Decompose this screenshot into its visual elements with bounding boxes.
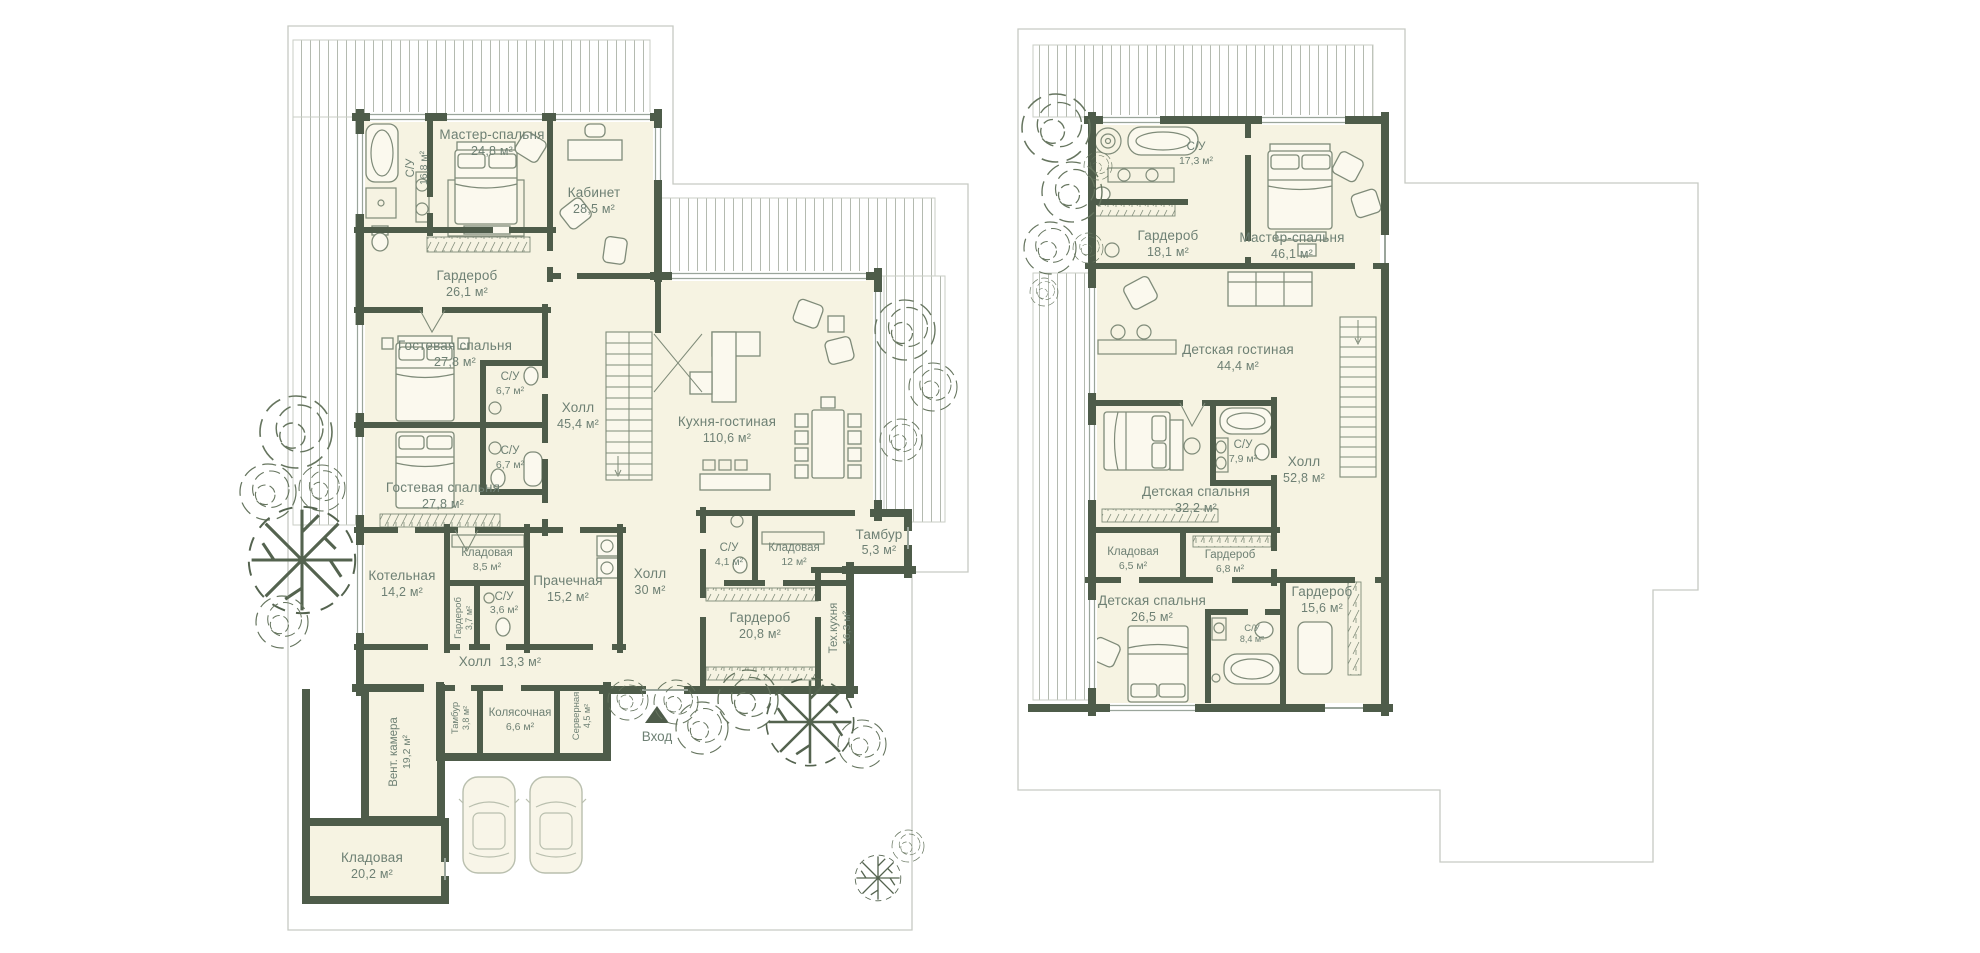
floorplan-svg: Вход С/У16,8 м² (0, 0, 1980, 953)
wardrobe-rail (706, 667, 818, 680)
wardrobe-rail (1095, 204, 1175, 216)
car-icon (526, 777, 586, 873)
terrace-deck (660, 198, 935, 276)
wardrobe-rail (1193, 536, 1271, 547)
wardrobe-rail (380, 514, 500, 527)
terrace-deck (884, 276, 945, 522)
entrance-label: Вход (642, 729, 673, 744)
room-label-tambur38: Тамбур3,8 м² (450, 702, 471, 734)
floor-2: С/У17,3 м² Гардероб18,1 м² Мастер-спальн… (1018, 29, 1698, 862)
entrance-label-text: Вход (642, 729, 673, 744)
terrace-deck (293, 117, 357, 525)
terrace-deck (293, 40, 650, 117)
car-icon (459, 777, 519, 873)
terrace-deck (1033, 273, 1092, 700)
floor-plan-canvas: Вход С/У16,8 м² (0, 0, 1980, 953)
terrace-deck (1033, 45, 1373, 117)
wardrobe-rail (427, 237, 530, 252)
floor-1: Вход С/У16,8 м² (240, 26, 968, 930)
room-label-hall133: Холл13,3 м² (459, 654, 542, 669)
stairs-floor2 (1340, 317, 1376, 477)
wardrobe-rail (706, 588, 818, 601)
